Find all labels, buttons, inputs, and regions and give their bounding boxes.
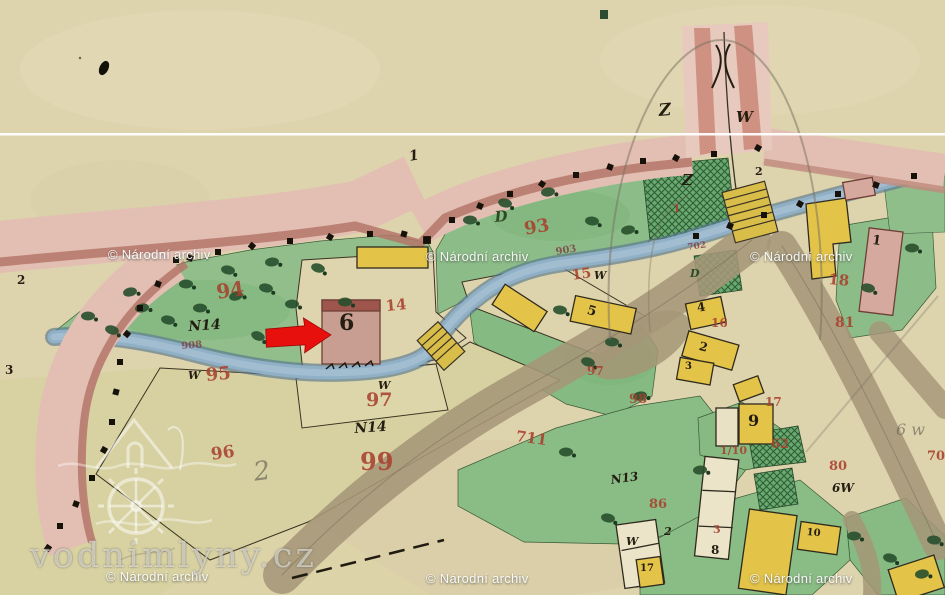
scan-white-line bbox=[0, 133, 945, 136]
site-watermark-text: vodnimlyny.cz bbox=[30, 536, 317, 576]
map-screenshot: 94959697999314159798711161881171/1062808… bbox=[0, 0, 945, 595]
cadastral-map[interactable] bbox=[0, 0, 945, 595]
